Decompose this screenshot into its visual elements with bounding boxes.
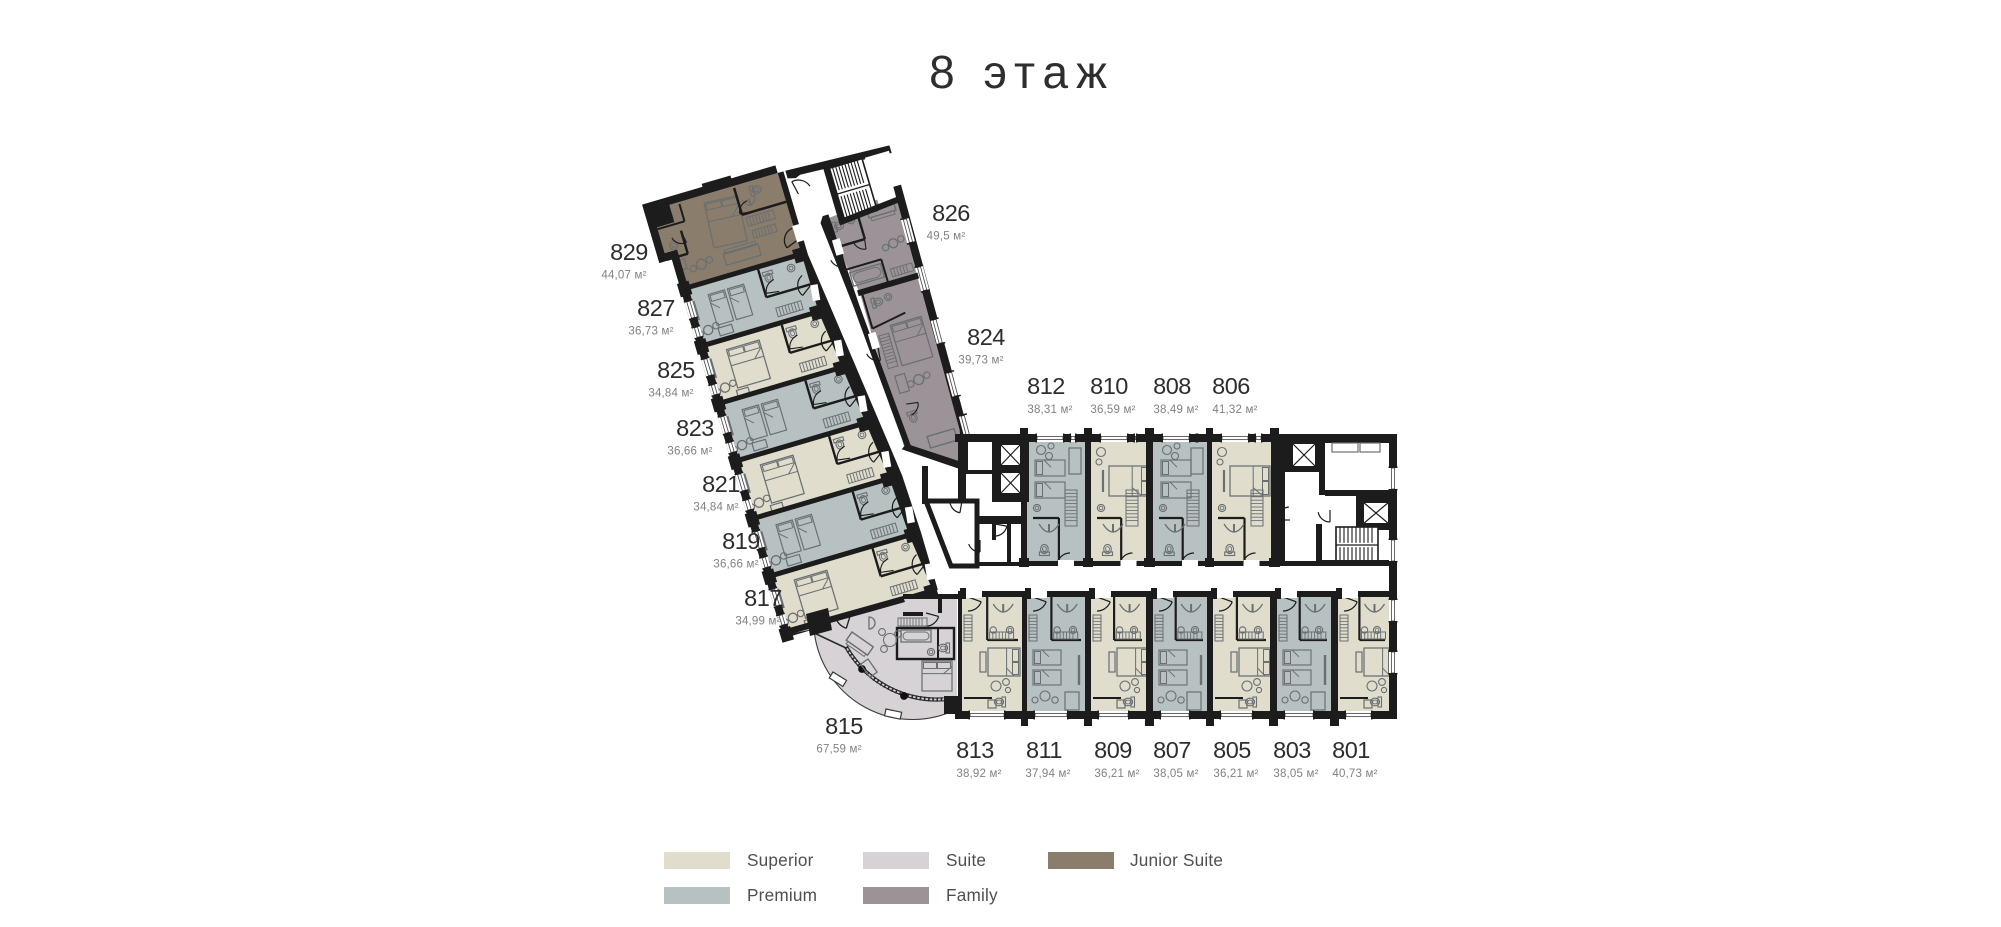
svg-text:39,73 м²: 39,73 м² xyxy=(958,355,1003,367)
svg-text:36,66 м²: 36,66 м² xyxy=(713,559,758,571)
svg-text:36,73 м²: 36,73 м² xyxy=(628,326,673,338)
svg-text:36,21 м²: 36,21 м² xyxy=(1094,768,1139,780)
svg-text:829: 829 xyxy=(610,239,648,265)
svg-text:49,5 м²: 49,5 м² xyxy=(927,231,966,243)
svg-text:813: 813 xyxy=(956,737,994,763)
svg-text:810: 810 xyxy=(1090,373,1128,399)
svg-text:8 этаж: 8 этаж xyxy=(929,46,1115,98)
svg-text:38,31 м²: 38,31 м² xyxy=(1027,404,1072,416)
svg-text:807: 807 xyxy=(1153,737,1191,763)
svg-text:817: 817 xyxy=(744,585,782,611)
svg-text:815: 815 xyxy=(825,713,863,739)
svg-text:Superior: Superior xyxy=(747,850,814,870)
svg-text:38,05 м²: 38,05 м² xyxy=(1273,768,1318,780)
svg-text:825: 825 xyxy=(657,357,695,383)
svg-text:Premium: Premium xyxy=(747,885,817,905)
svg-text:809: 809 xyxy=(1094,737,1132,763)
svg-text:36,66 м²: 36,66 м² xyxy=(667,446,712,458)
svg-text:34,84 м²: 34,84 м² xyxy=(648,388,693,400)
svg-text:36,21 м²: 36,21 м² xyxy=(1213,768,1258,780)
svg-text:36,59 м²: 36,59 м² xyxy=(1090,404,1135,416)
svg-text:38,92 м²: 38,92 м² xyxy=(956,768,1001,780)
svg-text:824: 824 xyxy=(967,324,1005,350)
svg-text:34,99 м²: 34,99 м² xyxy=(735,616,780,628)
svg-text:Junior Suite: Junior Suite xyxy=(1130,850,1223,870)
svg-text:803: 803 xyxy=(1273,737,1311,763)
svg-text:821: 821 xyxy=(702,471,740,497)
svg-text:827: 827 xyxy=(637,295,675,321)
svg-text:823: 823 xyxy=(676,415,714,441)
svg-text:37,94 м²: 37,94 м² xyxy=(1025,768,1070,780)
svg-text:38,05 м²: 38,05 м² xyxy=(1153,768,1198,780)
svg-text:40,73 м²: 40,73 м² xyxy=(1332,768,1377,780)
svg-text:819: 819 xyxy=(722,528,760,554)
svg-text:812: 812 xyxy=(1027,373,1065,399)
svg-text:38,49 м²: 38,49 м² xyxy=(1153,404,1198,416)
svg-text:67,59 м²: 67,59 м² xyxy=(816,744,861,756)
svg-text:34,84 м²: 34,84 м² xyxy=(693,502,738,514)
svg-text:805: 805 xyxy=(1213,737,1251,763)
svg-text:806: 806 xyxy=(1212,373,1250,399)
svg-text:41,32 м²: 41,32 м² xyxy=(1212,404,1257,416)
svg-text:Family: Family xyxy=(946,885,998,905)
svg-text:808: 808 xyxy=(1153,373,1191,399)
svg-text:801: 801 xyxy=(1332,737,1370,763)
svg-text:Suite: Suite xyxy=(946,850,986,870)
svg-text:811: 811 xyxy=(1026,737,1062,763)
svg-text:44,07 м²: 44,07 м² xyxy=(601,270,646,282)
svg-text:826: 826 xyxy=(932,200,970,226)
